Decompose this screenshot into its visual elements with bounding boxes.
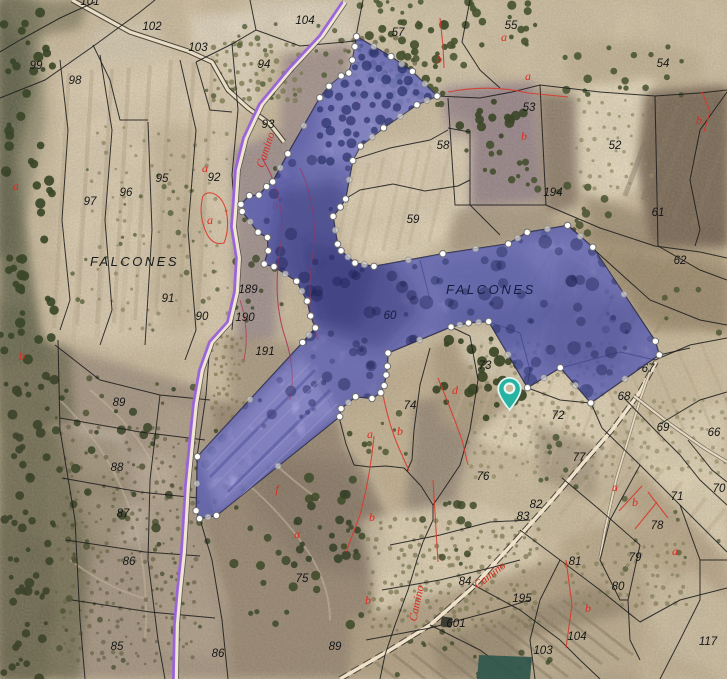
svg-text:89: 89 [329,641,342,653]
svg-text:58: 58 [437,140,450,152]
svg-text:84: 84 [459,576,472,588]
svg-text:69: 69 [657,422,670,434]
svg-text:117: 117 [699,636,718,648]
svg-text:a: a [13,179,19,193]
svg-text:85: 85 [111,641,124,653]
svg-text:93: 93 [262,119,275,131]
svg-text:78: 78 [651,520,664,532]
svg-text:71: 71 [671,491,684,503]
svg-text:53: 53 [523,102,536,114]
svg-text:95: 95 [156,173,169,185]
svg-text:191: 191 [255,346,274,358]
svg-text:104: 104 [295,15,314,27]
svg-text:195: 195 [512,593,532,605]
svg-text:b: b [696,113,702,127]
svg-text:104: 104 [567,631,586,643]
svg-text:98: 98 [69,75,82,87]
svg-text:b: b [585,601,591,615]
svg-text:70: 70 [713,483,726,495]
svg-text:62: 62 [674,255,687,267]
svg-text:a: a [207,213,213,227]
svg-text:60: 60 [384,310,397,322]
svg-text:66: 66 [708,427,721,439]
svg-text:a: a [367,427,373,441]
svg-text:99: 99 [30,60,43,72]
svg-text:189: 189 [238,284,258,296]
svg-text:89: 89 [113,397,126,409]
svg-text:90: 90 [196,311,209,323]
svg-text:FALCONES: FALCONES [90,254,179,269]
svg-text:a: a [294,527,300,541]
svg-text:b: b [365,593,371,607]
svg-text:68: 68 [618,391,631,403]
svg-text:76: 76 [477,471,490,483]
svg-text:86: 86 [212,648,225,660]
svg-text:92: 92 [208,172,221,184]
svg-text:75: 75 [296,573,309,585]
svg-text:b: b [19,349,25,363]
svg-text:88: 88 [111,462,124,474]
svg-text:b: b [397,424,403,438]
svg-text:79: 79 [629,552,642,564]
svg-text:61: 61 [652,207,665,219]
svg-text:102: 102 [142,21,162,33]
svg-text:a: a [612,480,618,494]
svg-text:74: 74 [404,400,417,412]
svg-text:103: 103 [533,645,553,657]
svg-text:59: 59 [407,214,420,226]
svg-text:55: 55 [505,20,518,32]
svg-text:96: 96 [120,187,133,199]
svg-text:a: a [525,69,531,83]
svg-text:83: 83 [517,511,530,523]
svg-text:91: 91 [162,293,175,305]
svg-text:57: 57 [392,27,405,39]
svg-text:b: b [632,495,638,509]
svg-text:b: b [369,510,375,524]
svg-text:94: 94 [258,59,271,71]
svg-text:82: 82 [530,499,543,511]
svg-text:a: a [501,30,507,44]
svg-text:54: 54 [657,58,670,70]
svg-text:d: d [452,383,459,397]
svg-text:a: a [672,544,678,558]
svg-text:194: 194 [543,187,562,199]
svg-text:103: 103 [188,42,208,54]
svg-text:81: 81 [569,556,582,568]
svg-text:601: 601 [446,618,465,630]
svg-text:FALCONES: FALCONES [446,282,536,297]
svg-text:77: 77 [573,452,586,464]
svg-text:97: 97 [84,196,97,208]
svg-text:87: 87 [117,508,130,520]
svg-text:52: 52 [609,140,622,152]
svg-text:190: 190 [235,312,255,324]
svg-text:b: b [436,52,442,66]
svg-text:73: 73 [479,360,492,372]
svg-text:b: b [521,129,527,143]
svg-text:72: 72 [552,410,565,422]
svg-text:101: 101 [80,0,99,8]
svg-text:86: 86 [123,556,136,568]
svg-text:80: 80 [612,581,625,593]
